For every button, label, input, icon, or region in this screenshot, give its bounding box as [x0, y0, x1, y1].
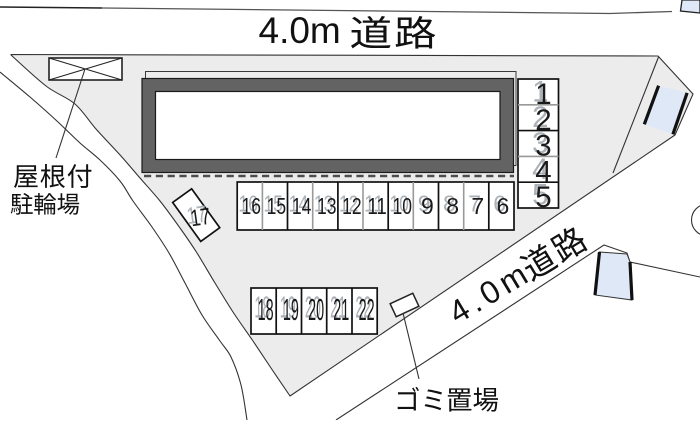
svg-text:10: 10	[393, 193, 413, 219]
svg-text:22: 22	[359, 292, 375, 327]
svg-text:5: 5	[535, 181, 551, 214]
svg-text:9: 9	[421, 193, 434, 219]
svg-text:6: 6	[497, 193, 510, 219]
svg-text:17: 17	[189, 203, 212, 232]
svg-text:12: 12	[342, 193, 362, 219]
svg-text:11: 11	[367, 193, 387, 219]
svg-text:4.0m: 4.0m	[259, 10, 341, 51]
svg-text:13: 13	[317, 193, 337, 219]
svg-text:18: 18	[258, 292, 274, 327]
svg-text:15: 15	[267, 193, 287, 219]
svg-text:8: 8	[446, 193, 459, 219]
svg-text:16: 16	[242, 193, 262, 219]
svg-text:20: 20	[308, 292, 324, 327]
svg-text:19: 19	[283, 292, 299, 327]
svg-text:14: 14	[292, 193, 312, 219]
svg-text:21: 21	[333, 292, 349, 327]
svg-text:7: 7	[471, 193, 484, 219]
